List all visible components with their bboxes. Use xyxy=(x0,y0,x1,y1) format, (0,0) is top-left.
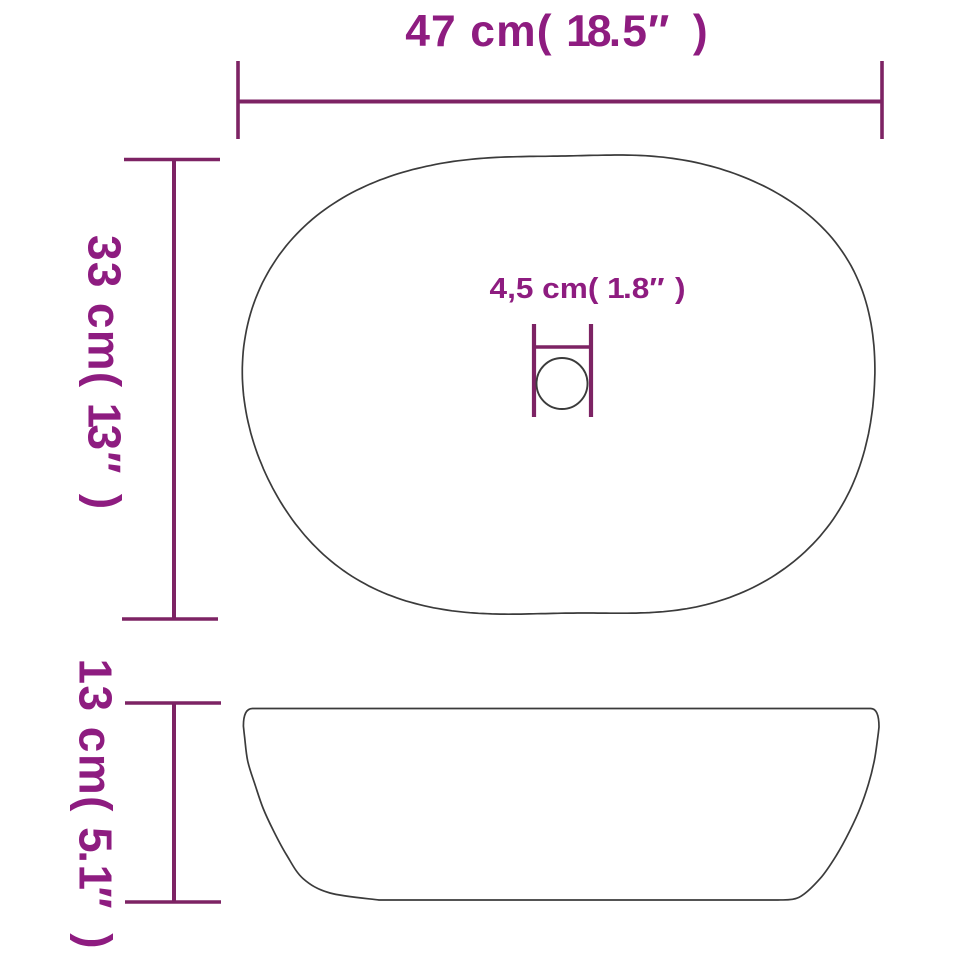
svg-text:33 cm( 13″ ): 33 cm( 13″ ) xyxy=(78,235,130,510)
svg-text:13 cm( 5.1″ ): 13 cm( 5.1″ ) xyxy=(70,659,122,951)
svg-text:47 cm( 18.5″ ): 47 cm( 18.5″ ) xyxy=(405,7,709,56)
svg-text:4,5 cm( 1.8″ ): 4,5 cm( 1.8″ ) xyxy=(490,273,686,305)
